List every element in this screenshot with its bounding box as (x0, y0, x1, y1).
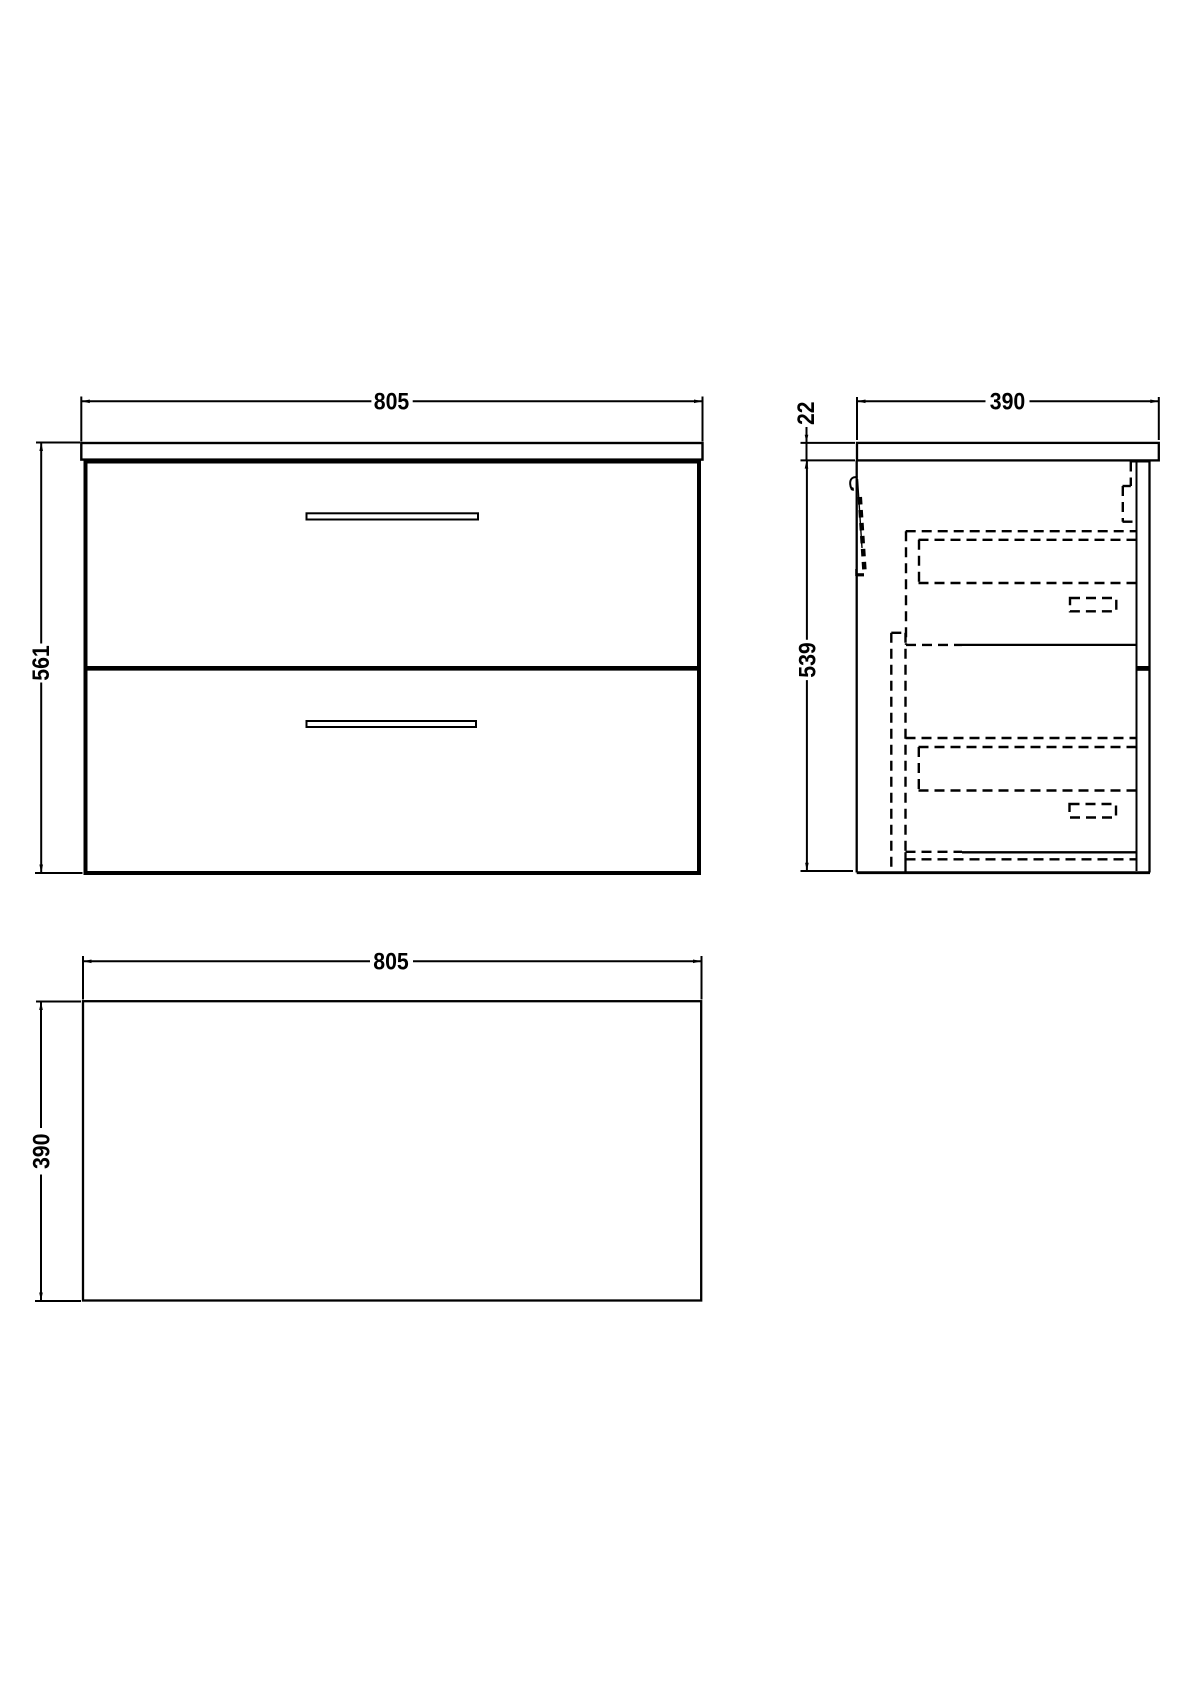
svg-text:805: 805 (374, 389, 410, 416)
svg-text:390: 390 (29, 1134, 56, 1170)
svg-text:539: 539 (794, 642, 821, 678)
svg-text:561: 561 (28, 645, 55, 681)
svg-text:390: 390 (990, 389, 1026, 416)
svg-text:805: 805 (373, 949, 409, 976)
svg-text:22: 22 (793, 402, 820, 426)
